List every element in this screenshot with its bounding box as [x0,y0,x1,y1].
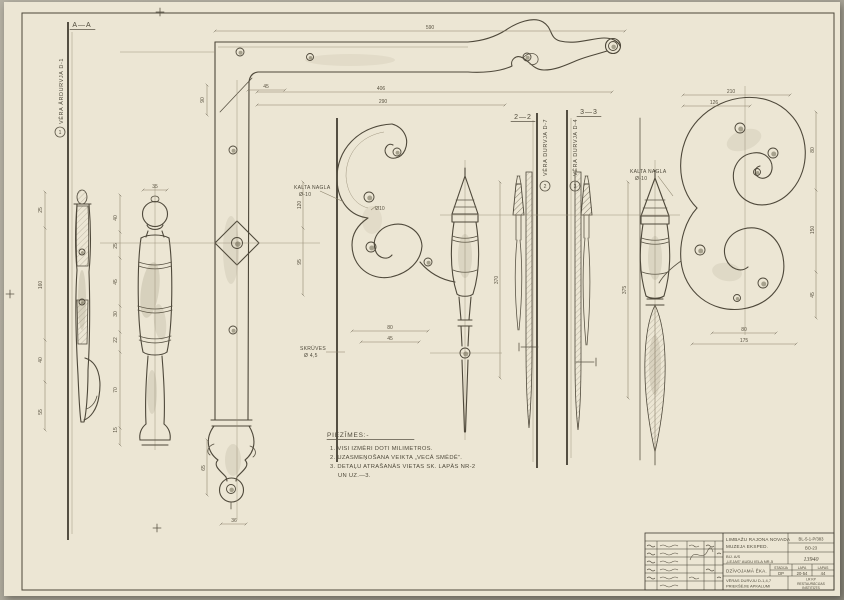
rivet [695,245,705,255]
scanned-drawing-sheet: 5904062904590210126801504580175354025453… [0,0,844,600]
dimension-value: 65 [201,465,207,471]
rivet [364,192,374,202]
dimension-value: 55 [38,409,44,415]
tb-stage-label: STADIJA [774,566,788,570]
dimension-value: 40 [113,215,119,221]
signature-grid [645,541,723,590]
callout-annotations: KALTA NAGLA Ø-10 KALTA NAGLA Ø-10 SKRŪVE… [294,169,673,359]
nail-callout-2-line1: KALTA NAGLA [630,169,667,175]
central-handle [451,160,478,440]
rivet [227,485,236,494]
dimension-value: 590 [426,25,435,31]
dimension-value: 45 [810,292,816,298]
dimension-value: 30 [113,311,119,317]
dimension-value: 40 [38,357,44,363]
screws-callout-line2: Ø 4,5 [304,353,318,359]
rivet [229,146,237,154]
tb-sheet-label: LAPA [798,566,807,570]
section-label-3-3: 3—3 [580,109,598,116]
tb-code-top: BL-5-1-P/383 [799,537,825,542]
section-label-a-a: A—A [72,22,91,29]
dimension-value: 120 [297,201,303,210]
title-block: LIMBAŽU RAJONA NOVADA MUZEJA EKSPED. BL-… [645,533,834,590]
rivet [734,295,741,302]
tb-doc-number: 13940 [804,556,819,563]
dimension-value: 80 [741,327,747,333]
tb-stage-value: DP [778,571,784,576]
dimension-value: 36 [231,518,237,524]
rivet [609,42,618,51]
tb-sheet-value: 20-54 [797,571,808,576]
dimension-value: 175 [740,338,749,344]
dimension-value: 70 [113,387,119,393]
section-3-3 [567,110,596,465]
item-label-1: VĒRA ĀRDURVJA D-1 [58,58,65,124]
tb-org-line1: LIMBAŽU RAJONA NOVADA [726,535,791,542]
dimension-value: 45 [387,336,393,342]
dimension-value: 375 [622,286,628,295]
dimension-value: 45 [113,279,119,285]
tb-object-line2: „LEJAS” AUDU IELA NR-5 [726,559,774,564]
rivet [229,326,237,334]
note-line-1: 1. VISI IZMĒRI DOTI MILIMETROS. [330,445,433,452]
dimension-value: 406 [377,86,386,92]
dimension-value: 290 [379,99,388,105]
note-line-3: 3. DETAĻU ATRAŠANĀS VIETAS SK. LAPĀS NR-… [330,463,475,470]
right-handle [640,160,669,465]
dimension-value: 25 [38,207,44,213]
tb-subject-line2: PRIEKŠĒJIE APKALUMI [726,584,770,589]
signature-scribbles [647,545,721,587]
screws-callout-line1: SKRŪVES [300,345,326,352]
left-edge-hardware [74,190,100,422]
dimension-value: 90 [200,97,206,103]
dimension-value: 22 [113,337,119,343]
right-scroll-ornament [659,86,805,335]
dimension-value: 126 [710,100,719,106]
dimension-value: 160 [38,281,44,290]
item-label-2: VĒRA DURVJA D-7 [542,119,549,176]
dimension-value: 210 [727,89,736,95]
dimension-value: 150 [810,226,816,235]
rivet [768,148,778,158]
item-number-1: 1 [59,130,62,136]
dimension-value: Ø10 [375,206,385,212]
dimension-value: 370 [494,276,500,285]
tb-institute-line3: INSTITŪTS [802,586,820,590]
item-number-2: 2 [544,184,547,190]
tb-sheets-label: LAPAS [818,566,829,570]
item-labels: VĒRA ĀRDURVJA D-1 1 VĒRA DURVJA D-7 2 VĒ… [55,58,580,191]
note-line-4: UN UZ.—3. [338,473,371,479]
dimension-value: 35 [152,184,158,190]
dimension-value: 80 [810,147,816,153]
item-number-3: 3 [574,184,577,190]
tb-sheets-value: 44 [821,571,826,576]
section-2-2 [513,113,538,468]
item-label-3: VĒRA DURVJA D-4 [572,119,579,176]
nail-callout-1-line2: Ø-10 [299,192,311,198]
rivet [393,148,401,156]
note-line-2: 2. UZASMEŅOŠANA VEIKTA „VECĀ SMĒDĒ”. [330,454,462,461]
dimension-value: 15 [113,427,119,433]
nail-callout-2-line2: Ø-10 [635,176,647,182]
dimension-value: 80 [387,325,393,331]
section-label-2-2: 2—2 [514,114,532,121]
notes-title: PIEZĪMES:- [327,431,369,439]
rivet [236,48,244,56]
tb-subject-line1: VĒRAS DURVJU D-1,4,7 [726,578,772,583]
dimension-value: 45 [263,84,269,90]
centering-marks [6,8,164,532]
rivet [754,169,761,176]
dimension-value: 25 [113,243,119,249]
nail-callout-1-line1: KALTA NAGLA [294,185,331,191]
rivet [758,278,768,288]
tb-org-line2: MUZEJA EKSPED. [726,544,768,549]
drawing-canvas: 5904062904590210126801504580175354025453… [0,0,844,600]
notes-block: PIEZĪMES:- 1. VISI IZMĒRI DOTI MILIMETRO… [327,431,475,479]
dimension-value: 95 [297,259,303,265]
tb-code-bottom: BO-23 [805,546,818,551]
rivet [424,258,432,266]
tb-building: DZĪVOJAMĀ ĒKA. [726,568,767,574]
